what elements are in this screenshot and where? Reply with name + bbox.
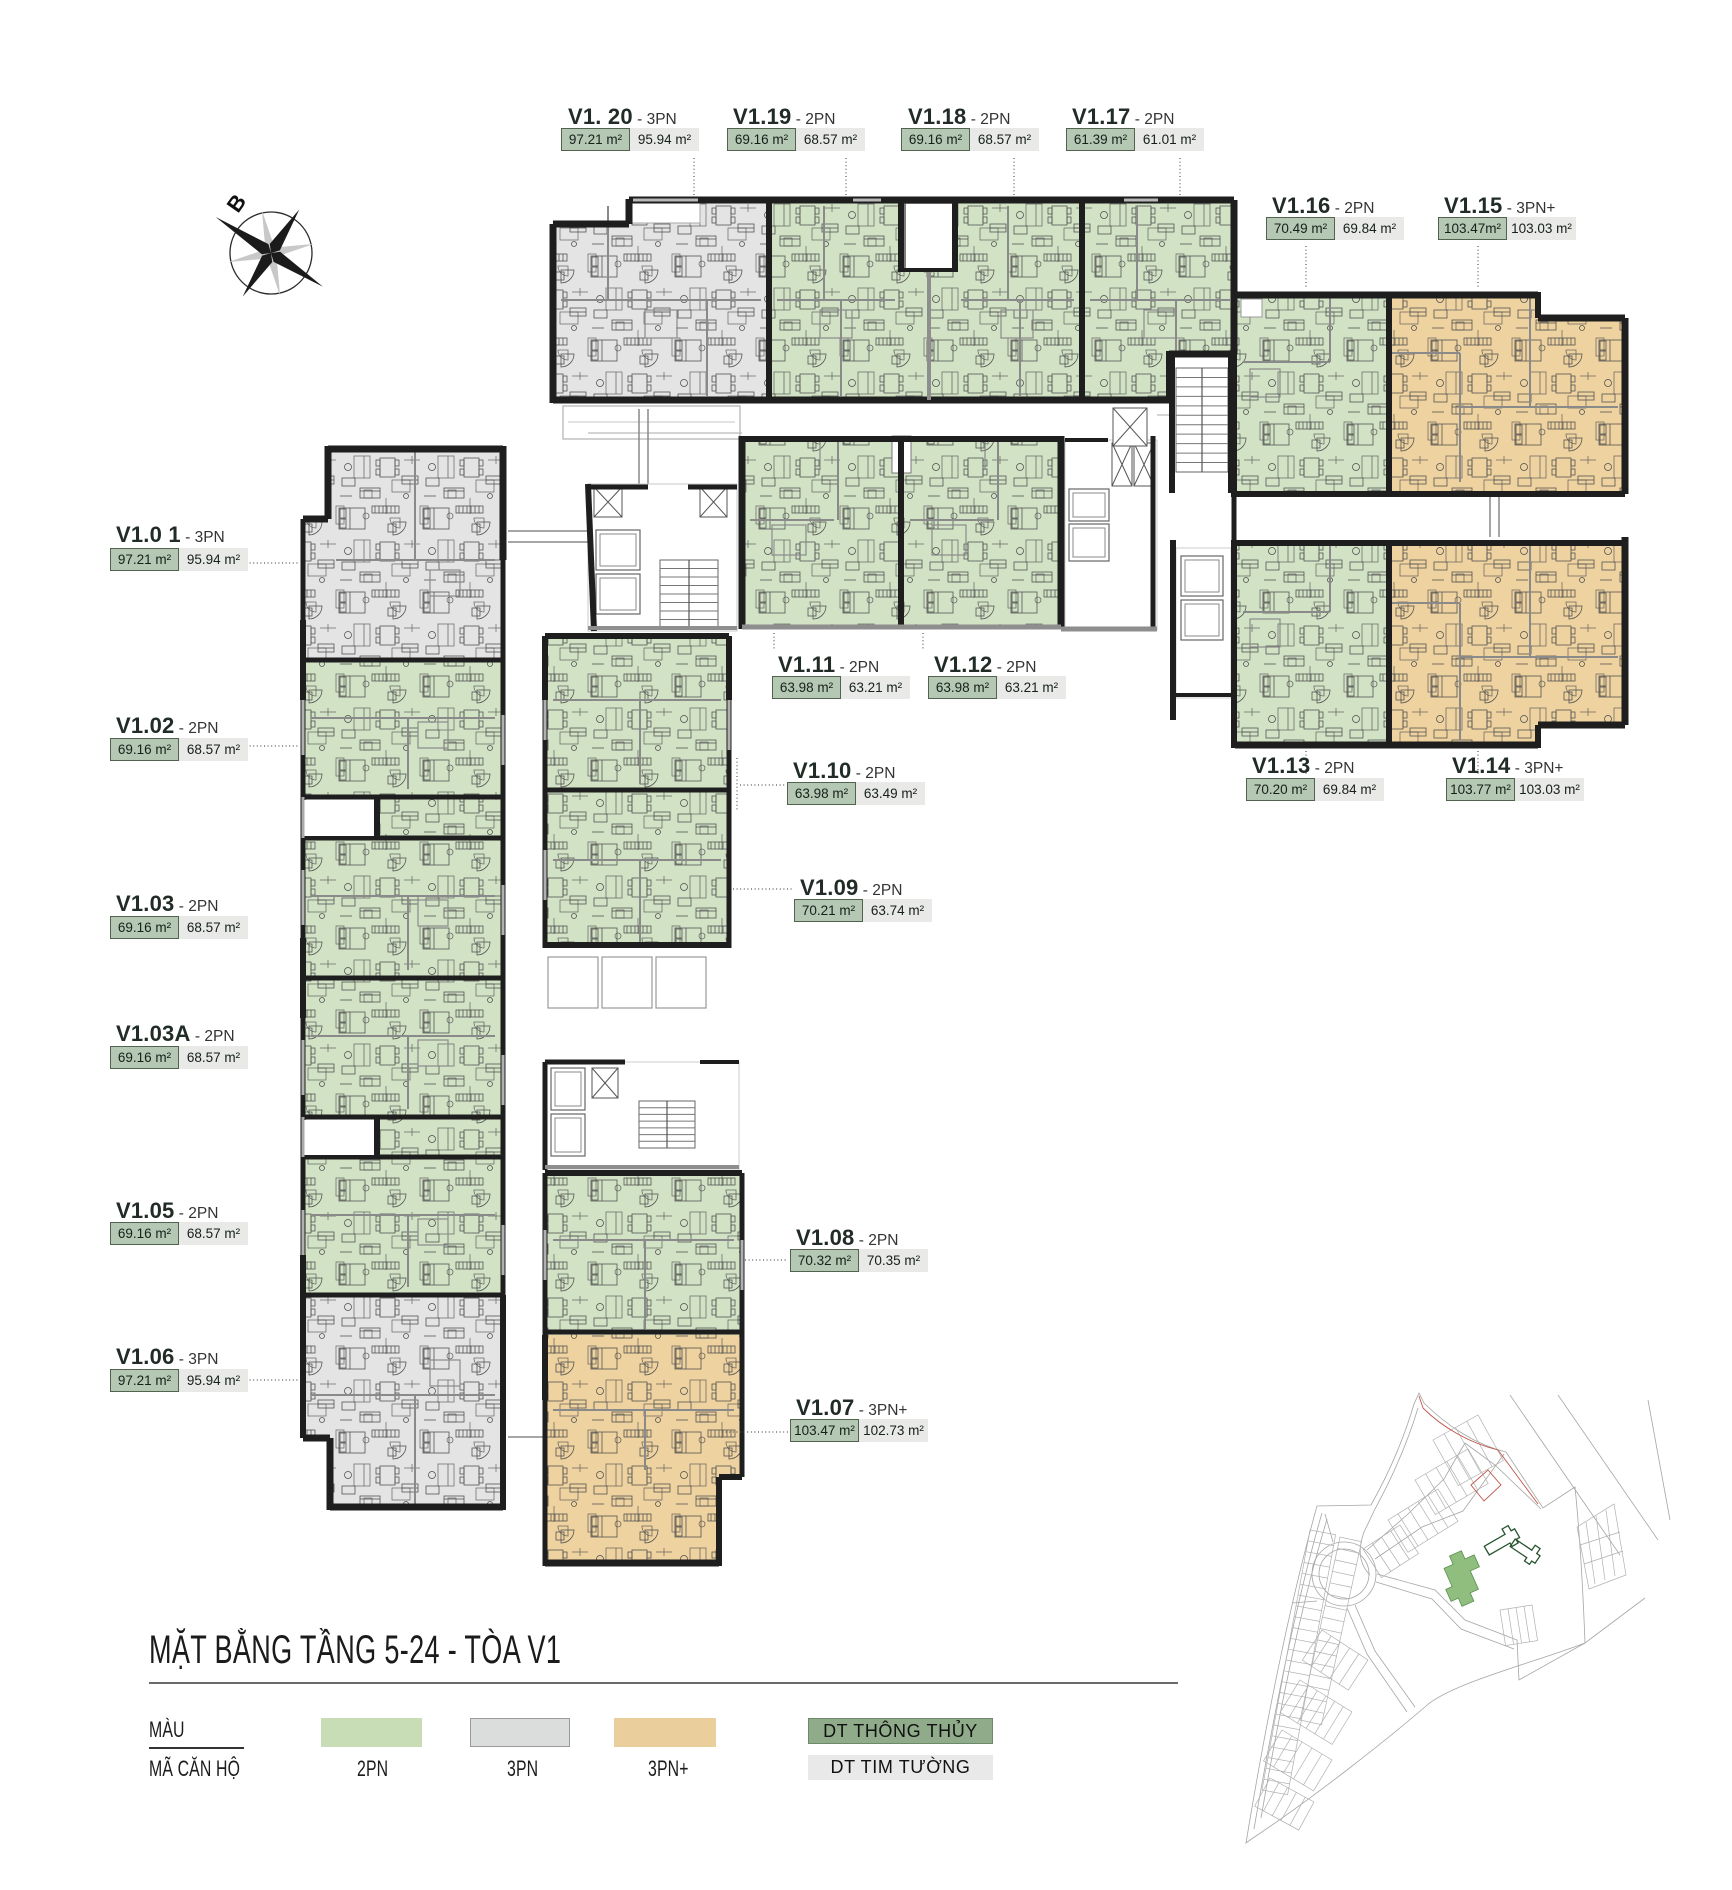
- svg-text:B: B: [222, 190, 252, 217]
